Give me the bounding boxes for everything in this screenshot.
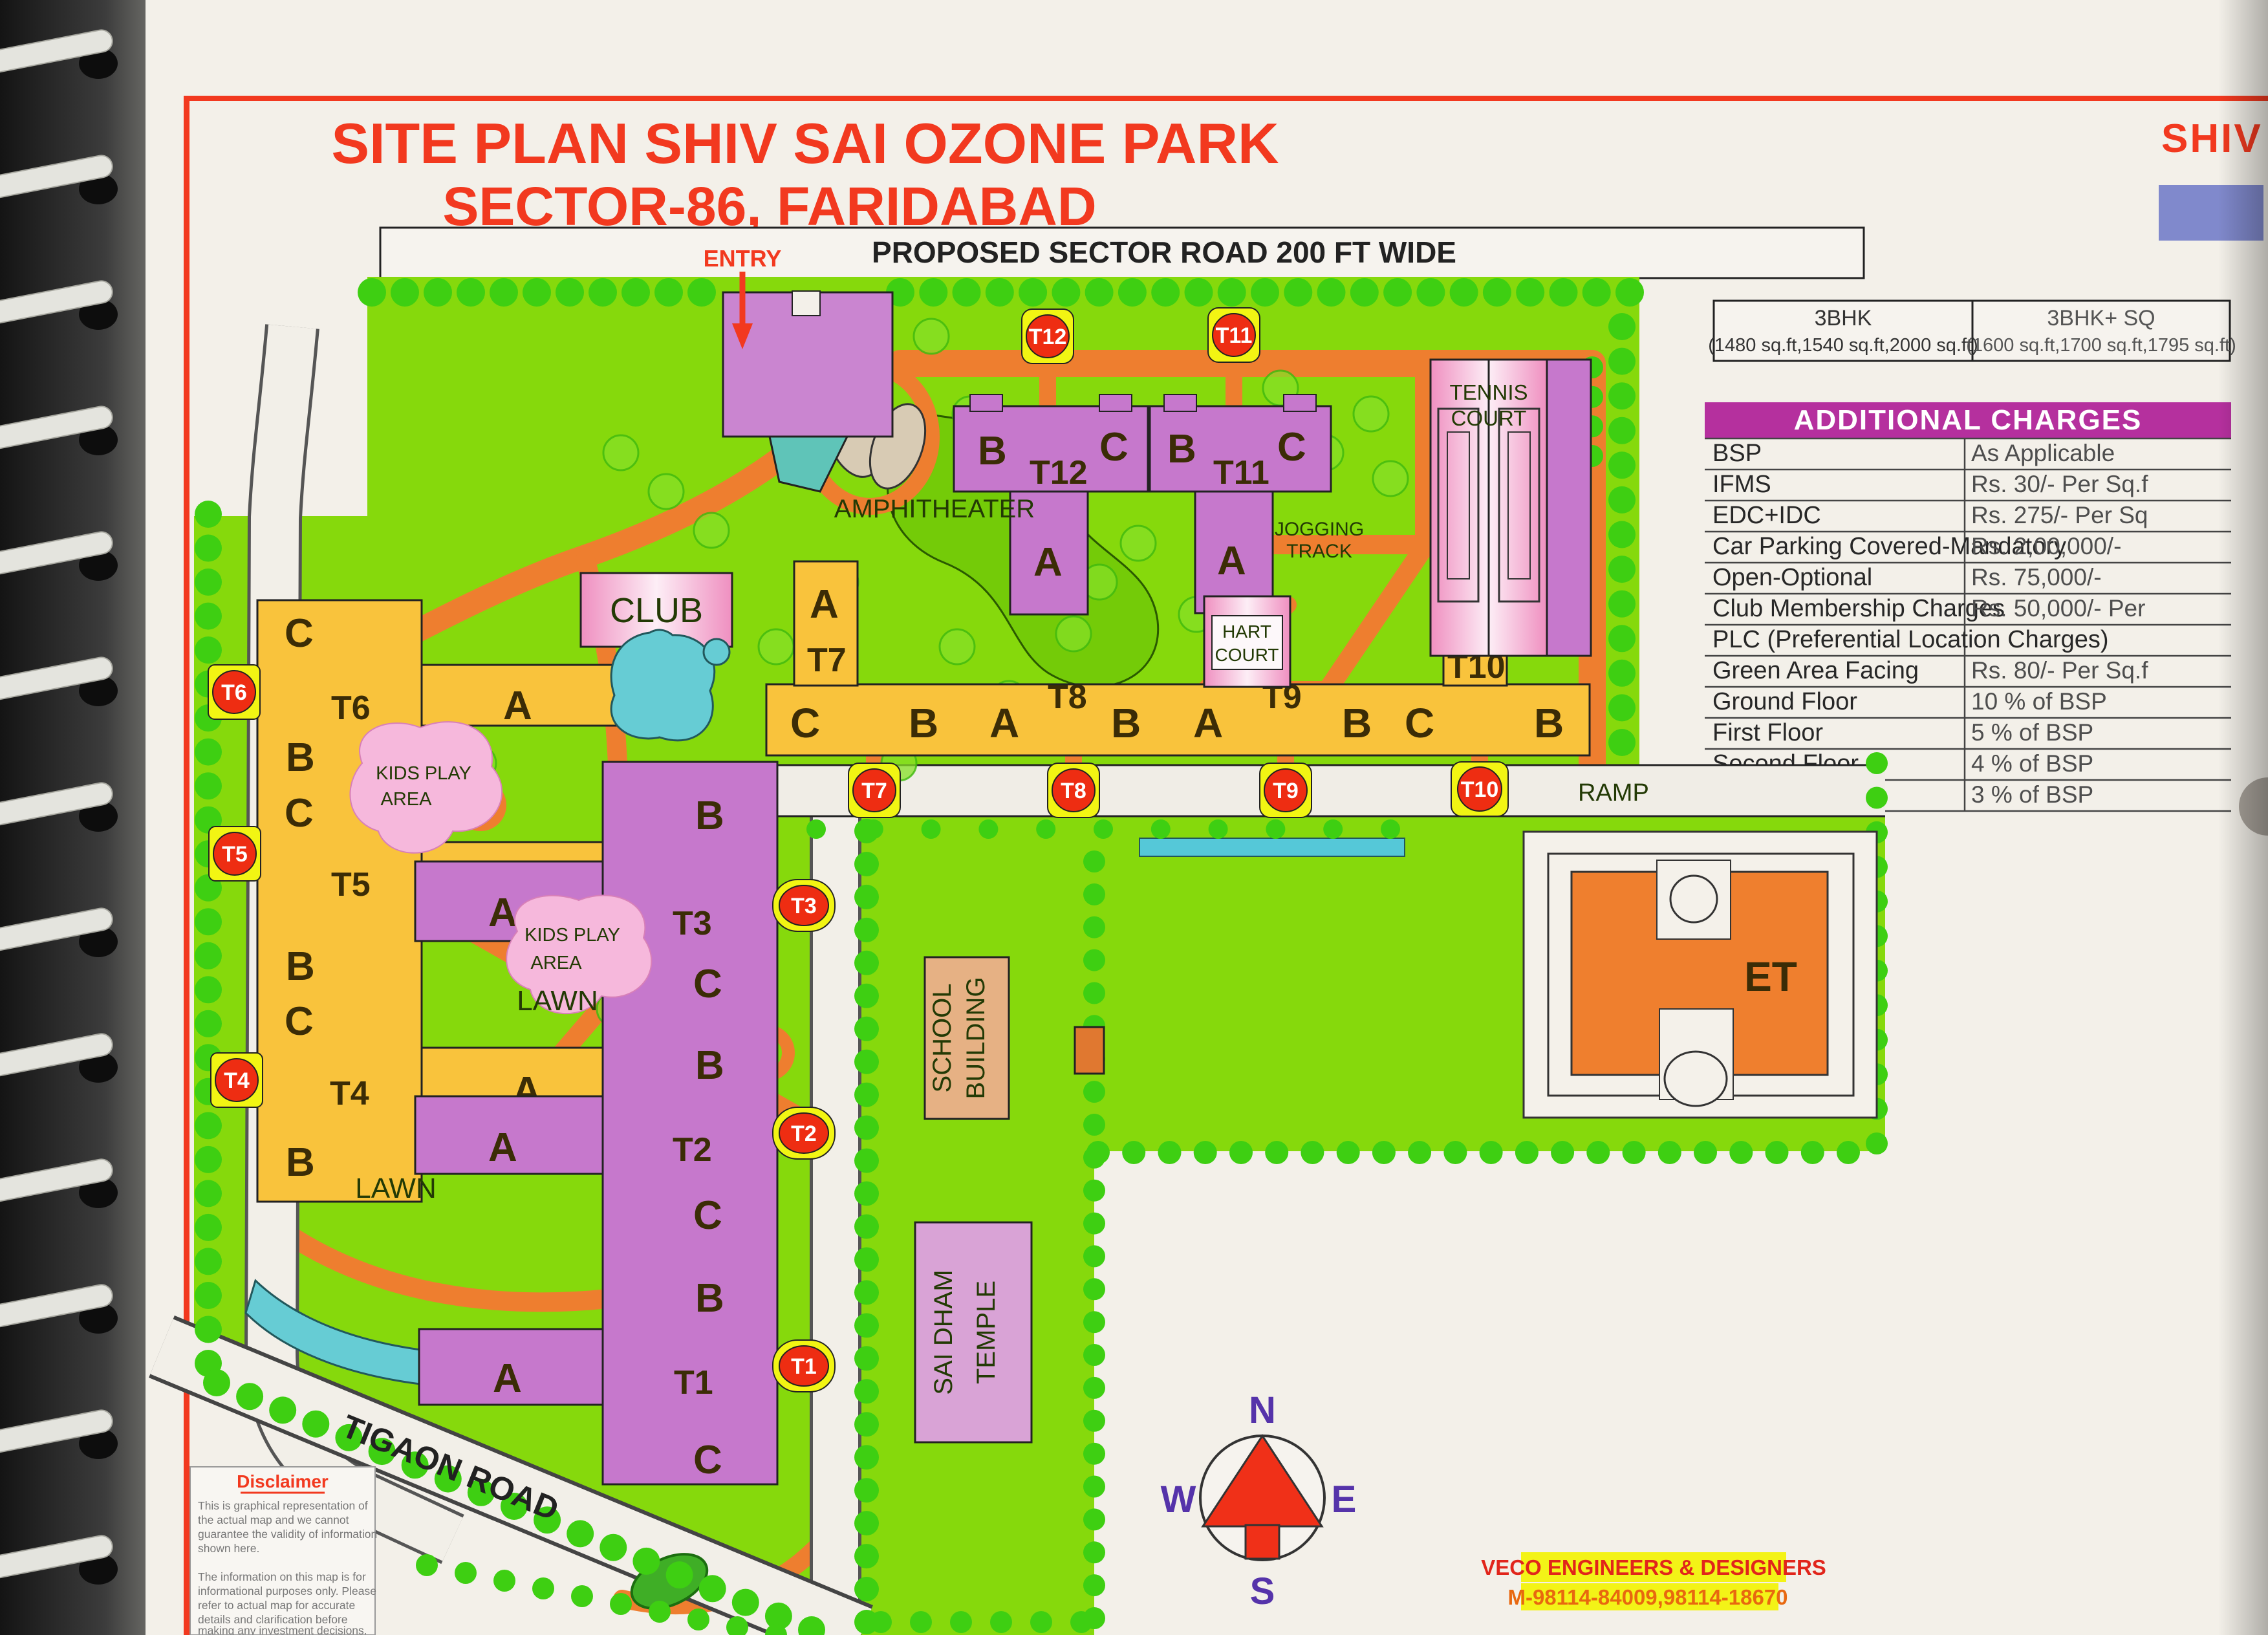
charge-label: Green Area Facing xyxy=(1712,657,1919,684)
marker-label: T7 xyxy=(861,779,887,803)
designer-name: VECO ENGINEERS & DESIGNERS xyxy=(1481,1555,1826,1579)
tower-label: T2 xyxy=(673,1131,712,1169)
charge-value: Rs. 30/- Per Sq.f xyxy=(1971,471,2148,497)
entry-label: ENTRY xyxy=(704,245,782,272)
marker-label: T10 xyxy=(1461,777,1499,802)
marker-t7: T7 xyxy=(848,763,900,817)
wing-letter: A xyxy=(1217,539,1246,583)
disclaimer-heading: Disclaimer xyxy=(237,1471,329,1491)
marker-t5: T5 xyxy=(209,827,261,881)
ramp-label: RAMP xyxy=(1578,779,1649,807)
compass-s: S xyxy=(1250,1570,1275,1612)
wing-letter: B xyxy=(286,1140,315,1185)
disclaimer-line: refer to actual map for accurate xyxy=(198,1599,355,1612)
marker-t10: T10 xyxy=(1451,762,1508,816)
wing-letter: C xyxy=(1405,700,1434,746)
tower-label: T4 xyxy=(330,1075,369,1112)
wing-letter: C xyxy=(790,700,820,746)
charge-label: Ground Floor xyxy=(1712,688,1857,715)
disclaimer-box: Disclaimer This is graphical representat… xyxy=(190,1467,377,1635)
lawn-label: LAWN xyxy=(517,985,598,1017)
marker-label: T11 xyxy=(1216,323,1253,348)
charge-value: 4 % of BSP xyxy=(1971,750,2093,777)
wing-letter: B xyxy=(1167,427,1196,471)
lawn-label: LAWN xyxy=(355,1173,437,1204)
charge-value: 3 % of BSP xyxy=(1971,781,2093,808)
club-label: CLUB xyxy=(610,591,703,630)
designer-credit: VECO ENGINEERS & DESIGNERS M-98114-84009… xyxy=(1481,1552,1826,1610)
tennis-label: COURT xyxy=(1451,406,1527,430)
marker-t11: T11 xyxy=(1208,308,1260,362)
wing-letter: A xyxy=(493,1356,522,1401)
disclaimer-line: shown here. xyxy=(198,1542,259,1555)
temple-label: TEMPLE xyxy=(972,1281,1000,1384)
marker-t9: T9 xyxy=(1260,763,1312,817)
disclaimer-line: This is graphical representation of xyxy=(198,1499,368,1512)
disclaimer-line: informational purposes only. Please xyxy=(198,1585,376,1597)
kids-play-label: KIDS PLAY xyxy=(524,925,620,946)
wing-letter: C xyxy=(693,1193,722,1238)
wing-letter: A xyxy=(810,582,839,627)
unit-type-table: 3BHK (1480 sq.ft,1540 sq.ft,2000 sq.ft) … xyxy=(1708,301,2236,361)
marker-t8: T8 xyxy=(1048,763,1099,817)
charge-label: PLC (Preferential Location Charges) xyxy=(1712,626,2109,653)
charge-label: BSP xyxy=(1712,440,1762,467)
hart-court-label: HART xyxy=(1222,622,1271,642)
charge-value: Rs. 275/- Per Sq xyxy=(1971,502,2148,528)
school-building: SCHOOL BUILDING xyxy=(925,957,1009,1119)
wing-letter: B xyxy=(286,735,315,780)
tower-label: T11 xyxy=(1213,454,1269,492)
marker-label: T1 xyxy=(791,1354,817,1379)
tower-label: T7 xyxy=(807,642,847,679)
tower-label: T8 xyxy=(1048,678,1087,716)
ramp-road xyxy=(768,765,1885,816)
disclaimer-line: guarantee the validity of information xyxy=(198,1528,377,1541)
sector-road-banner: PROPOSED SECTOR ROAD 200 FT WIDE xyxy=(380,228,1864,278)
wing-letter: C xyxy=(285,791,314,836)
et-label: ET xyxy=(1744,953,1797,1000)
charge-value: Rs. 50,000/- Per xyxy=(1971,595,2145,622)
school-label: SCHOOL xyxy=(928,984,956,1093)
compass-e: E xyxy=(1332,1478,1357,1521)
wing-letter: B xyxy=(978,429,1007,473)
marker-t12: T12 xyxy=(1022,309,1074,363)
wing-letter: B xyxy=(286,944,315,989)
tennis-label: TENNIS xyxy=(1449,380,1528,404)
marker-label: T2 xyxy=(791,1121,817,1146)
wing-letter: B xyxy=(1342,700,1372,746)
wing-letter: B xyxy=(695,1276,724,1321)
charge-value: Rs. 75,000/- xyxy=(1971,564,2102,590)
sai-dham-temple: SAI DHAM TEMPLE xyxy=(915,1222,1031,1442)
jogging-track-label: TRACK xyxy=(1286,541,1352,562)
et-compound: ET xyxy=(1524,832,1877,1118)
tower-label: T12 xyxy=(1030,454,1088,492)
wing-letter: C xyxy=(285,611,314,656)
marker-t2: T2 xyxy=(773,1107,835,1159)
unit-col1-name: 3BHK xyxy=(1815,306,1872,330)
wing-letter: A xyxy=(1193,700,1223,746)
wing-letter: C xyxy=(1277,425,1306,470)
wing-letter: A xyxy=(1033,540,1063,585)
tower-label: T3 xyxy=(673,905,712,942)
wing-letter: B xyxy=(1534,700,1564,746)
marker-t3: T3 xyxy=(773,880,835,931)
designer-phone: M-98114-84009,98114-18670 xyxy=(1507,1585,1787,1609)
wing-letter: B xyxy=(695,1043,724,1088)
disclaimer-line: the actual map and we cannot xyxy=(198,1513,349,1526)
wing-letter: A xyxy=(989,700,1019,746)
hart-court-label: COURT xyxy=(1215,645,1279,665)
page-title-line1: SITE PLAN SHIV SAI OZONE PARK xyxy=(331,111,1279,175)
page-edge-shadow xyxy=(2218,0,2268,1635)
amphitheater-label: AMPHITHEATER xyxy=(834,495,1035,523)
wing-letter: B xyxy=(1111,700,1141,746)
tower-chain-t1-t3: B T3 A C B T2 A C B T1 A C xyxy=(415,762,777,1484)
wing-letter: B xyxy=(909,700,938,746)
wing-letter: A xyxy=(503,684,532,728)
marker-label: T9 xyxy=(1273,779,1299,803)
wing-letter: B xyxy=(695,794,724,838)
charge-label: Open-Optional xyxy=(1712,564,1872,591)
charge-value: As Applicable xyxy=(1971,440,2115,466)
marker-t4: T4 xyxy=(211,1053,263,1107)
wing-letter: C xyxy=(1099,425,1129,470)
wing-letter: A xyxy=(488,1125,517,1170)
charge-label: IFMS xyxy=(1712,471,1771,498)
marker-label: T5 xyxy=(222,842,248,867)
charge-value: Rs. 2,00,000/- xyxy=(1971,533,2121,559)
scanned-site-plan-page: SITE PLAN SHIV SAI OZONE PARK SECTOR-86,… xyxy=(0,0,2268,1635)
marker-label: T8 xyxy=(1061,779,1086,803)
wing-letter: A xyxy=(488,891,517,935)
kids-play-label: AREA xyxy=(381,789,433,810)
marker-label: T4 xyxy=(224,1068,250,1093)
charges-header-label: ADDITIONAL CHARGES xyxy=(1794,404,2143,436)
unit-col1-sizes: (1480 sq.ft,1540 sq.ft,2000 sq.ft) xyxy=(1708,335,1978,356)
marker-t6: T6 xyxy=(208,665,260,719)
unit-col2-sizes: (1600 sq.ft,1700 sq.ft,1795 sq.ft) xyxy=(1966,335,2236,356)
wing-letter: C xyxy=(693,962,722,1006)
disclaimer-line: making any investment decisions. xyxy=(198,1624,367,1635)
charge-value: 10 % of BSP xyxy=(1971,688,2107,715)
disclaimer-line: The information on this map is for xyxy=(198,1570,366,1583)
water-channel xyxy=(1139,838,1405,856)
marker-label: T12 xyxy=(1029,325,1067,349)
temple-label: SAI DHAM xyxy=(929,1270,958,1394)
marker-label: T6 xyxy=(221,680,247,705)
tower-label: T6 xyxy=(331,689,371,727)
kids-play-label: KIDS PLAY xyxy=(376,763,471,784)
tennis-court: TENNIS COURT xyxy=(1431,360,1591,656)
compass-w: W xyxy=(1161,1478,1196,1521)
charge-label: EDC+IDC xyxy=(1712,502,1821,529)
utility-structure xyxy=(1075,1027,1104,1074)
hart-court: HART COURT xyxy=(1204,596,1290,687)
charge-label: Club Membership Charges xyxy=(1712,595,2005,622)
wing-letter: C xyxy=(693,1438,722,1482)
marker-label: T3 xyxy=(791,894,817,918)
wing-letter: C xyxy=(285,999,314,1044)
jogging-track-label: JOGGING xyxy=(1275,519,1364,540)
unit-col2-name: 3BHK+ SQ xyxy=(2047,306,2155,330)
school-label: BUILDING xyxy=(962,977,990,1099)
charge-label: First Floor xyxy=(1712,719,1823,746)
compass-n: N xyxy=(1249,1389,1276,1431)
charge-value: 5 % of BSP xyxy=(1971,719,2093,746)
marker-t1: T1 xyxy=(773,1340,835,1392)
kids-play-label: AREA xyxy=(531,953,583,973)
tower-label: T5 xyxy=(331,866,371,904)
tower-label: T1 xyxy=(674,1364,713,1402)
sector-road-label: PROPOSED SECTOR ROAD 200 FT WIDE xyxy=(872,235,1456,269)
charge-value: Rs. 80/- Per Sq.f xyxy=(1971,657,2148,684)
